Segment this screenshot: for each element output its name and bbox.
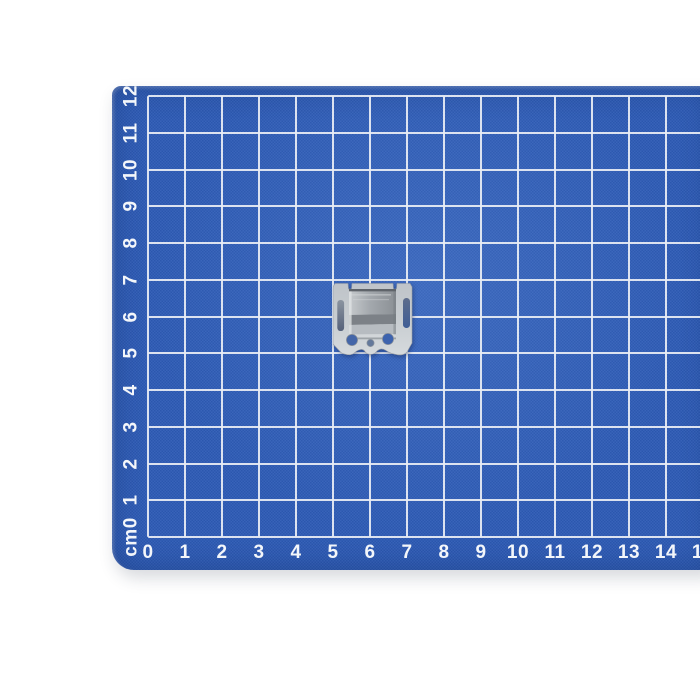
x-axis-label: 14 (655, 543, 677, 562)
y-axis-label: 7 (122, 274, 141, 285)
clip-slot-right (403, 298, 410, 328)
grid-line-horizontal (148, 205, 700, 207)
y-axis-label: 1 (122, 495, 141, 506)
grid-line-horizontal (148, 95, 700, 97)
x-axis-label: 8 (438, 543, 449, 562)
x-axis-label: 3 (253, 543, 264, 562)
y-axis-label: 2 (122, 458, 141, 469)
x-axis-label: 1 (179, 543, 190, 562)
y-axis-label: 4 (122, 384, 141, 395)
x-axis-label: 5 (327, 543, 338, 562)
clip-hole-center (367, 339, 374, 346)
y-axis-label: 9 (122, 201, 141, 212)
x-axis-label: 9 (475, 543, 486, 562)
grid-line-horizontal (148, 352, 700, 354)
x-axis-label: 13 (618, 543, 640, 562)
y-axis-label: 10 (122, 158, 141, 180)
grid-line-horizontal (148, 426, 700, 428)
y-axis-label: 8 (122, 237, 141, 248)
y-axis-label: 12 (122, 85, 141, 107)
x-axis-label: 11 (544, 543, 565, 562)
x-axis-label: 10 (507, 543, 529, 562)
grid-line-horizontal (148, 463, 700, 465)
x-axis-label: 15 (692, 543, 700, 562)
y-axis-label: 11 (122, 122, 141, 143)
clip-slot-left (337, 300, 344, 331)
grid-line-horizontal (148, 316, 700, 318)
clip-hole-right (382, 333, 393, 344)
x-axis-label: 7 (401, 543, 412, 562)
x-axis-label: 2 (216, 543, 227, 562)
grid-line-horizontal (148, 499, 700, 501)
grid-line-horizontal (148, 169, 700, 171)
x-axis-label: 12 (581, 543, 603, 562)
y-axis-label: 3 (122, 421, 141, 432)
clip-hole-left (346, 334, 357, 345)
product-photo: 0123456789101112131415 cm012345678910111… (0, 0, 700, 700)
cutting-mat: 0123456789101112131415 cm012345678910111… (112, 86, 700, 570)
x-axis-label: 4 (290, 543, 301, 562)
grid-line-horizontal (148, 279, 700, 281)
y-axis-label: 6 (122, 311, 141, 322)
grid-line-horizontal (148, 389, 700, 391)
y-axis-label: cm0 (122, 517, 141, 557)
clip-box (349, 289, 396, 339)
metal-clip (333, 283, 413, 358)
grid-line-horizontal (148, 536, 700, 538)
x-axis-label: 6 (364, 543, 375, 562)
x-axis-label: 0 (142, 543, 153, 562)
grid-line-horizontal (148, 242, 700, 244)
grid-line-horizontal (148, 132, 700, 134)
y-axis-label: 5 (122, 348, 141, 359)
